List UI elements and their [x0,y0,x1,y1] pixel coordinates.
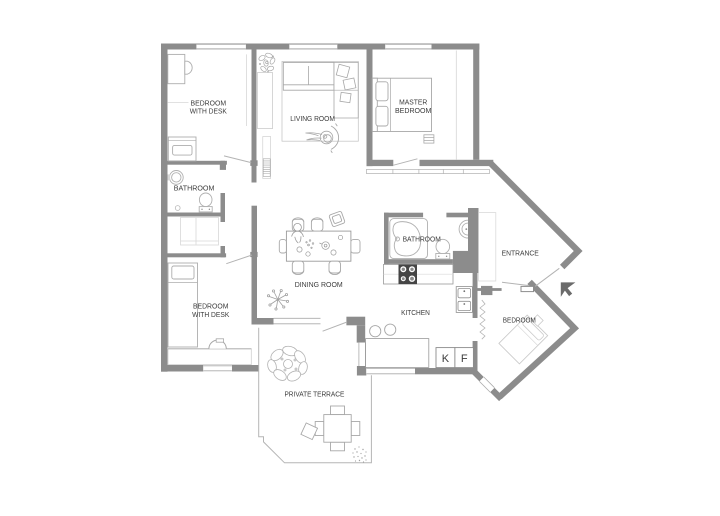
svg-text:WITH DESK: WITH DESK [192,310,229,319]
svg-text:PRIVATE TERRACE: PRIVATE TERRACE [284,389,344,398]
svg-text:K: K [442,353,450,365]
svg-text:DINING ROOM: DINING ROOM [295,280,343,289]
svg-text:BEDROOM: BEDROOM [503,316,536,325]
svg-text:LIVING ROOM: LIVING ROOM [290,114,335,123]
svg-text:BEDROOM: BEDROOM [193,301,229,310]
svg-text:BEDROOM: BEDROOM [395,106,432,115]
svg-text:F: F [461,353,468,365]
svg-text:KITCHEN: KITCHEN [401,308,430,317]
svg-text:BATHROOM: BATHROOM [403,234,441,243]
svg-text:BATHROOM: BATHROOM [174,184,215,193]
svg-text:WITH DESK: WITH DESK [190,106,227,115]
svg-text:ENTRANCE: ENTRANCE [502,249,539,258]
